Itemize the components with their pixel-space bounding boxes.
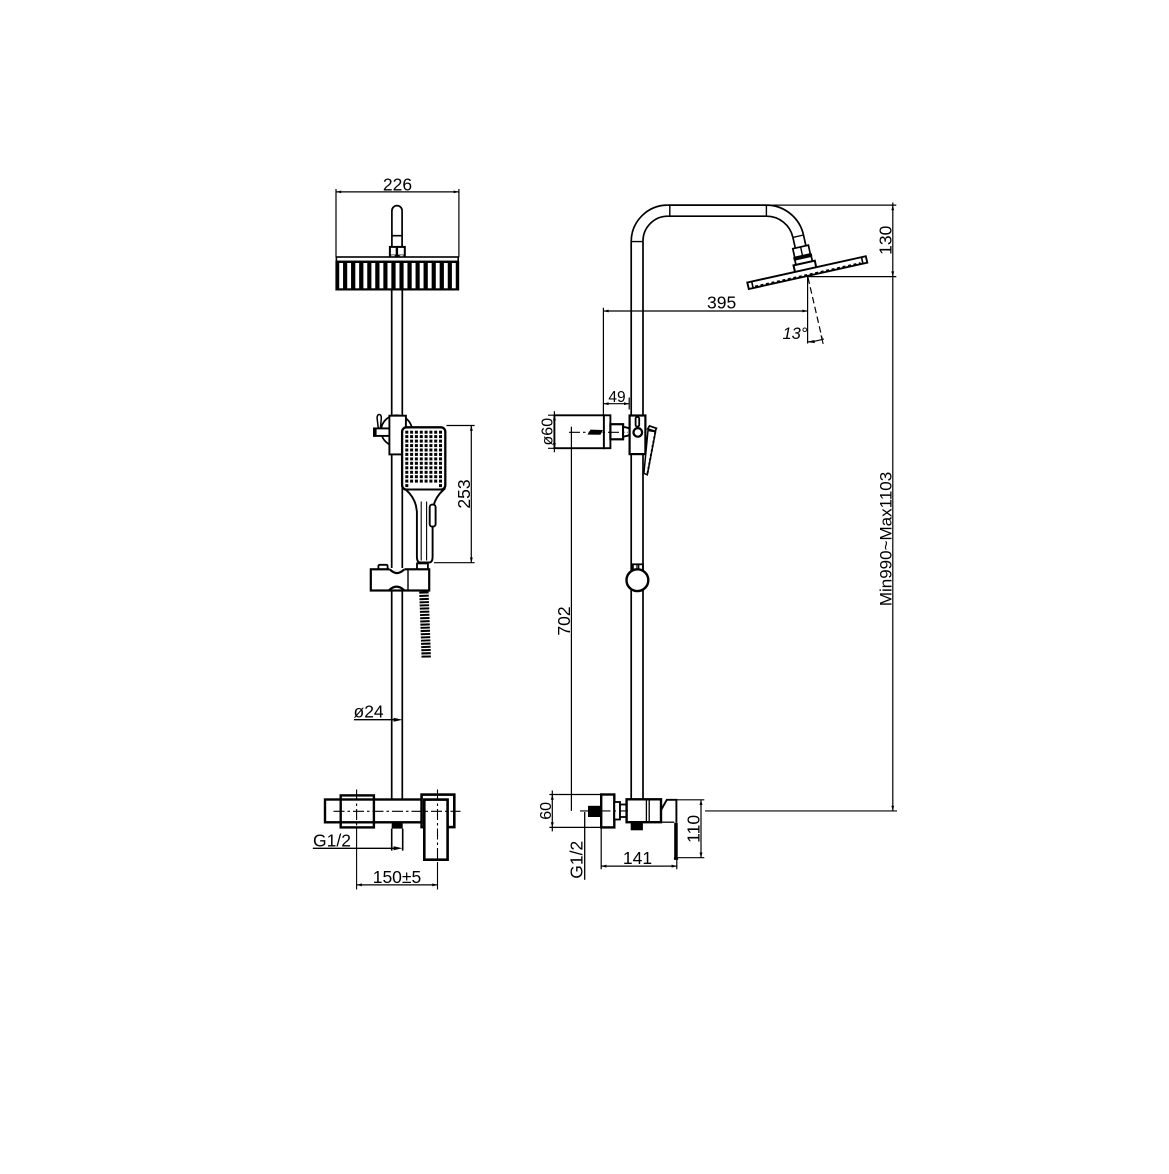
svg-text:110: 110 [684, 815, 704, 843]
svg-text:ø60: ø60 [540, 418, 557, 446]
svg-text:395: 395 [707, 292, 736, 312]
svg-text:ø24: ø24 [354, 701, 384, 721]
svg-text:G1/2: G1/2 [566, 841, 586, 879]
svg-text:G1/2: G1/2 [313, 831, 351, 851]
svg-text:150±5: 150±5 [373, 867, 422, 887]
svg-text:702: 702 [554, 606, 574, 635]
svg-text:Min990~Max1103: Min990~Max1103 [876, 472, 895, 606]
svg-text:141: 141 [623, 848, 652, 868]
svg-text:130: 130 [875, 225, 895, 254]
svg-text:49: 49 [608, 389, 625, 406]
svg-text:13°: 13° [783, 325, 808, 343]
svg-text:253: 253 [454, 479, 474, 508]
svg-text:60: 60 [538, 802, 555, 820]
svg-text:226: 226 [383, 175, 412, 195]
